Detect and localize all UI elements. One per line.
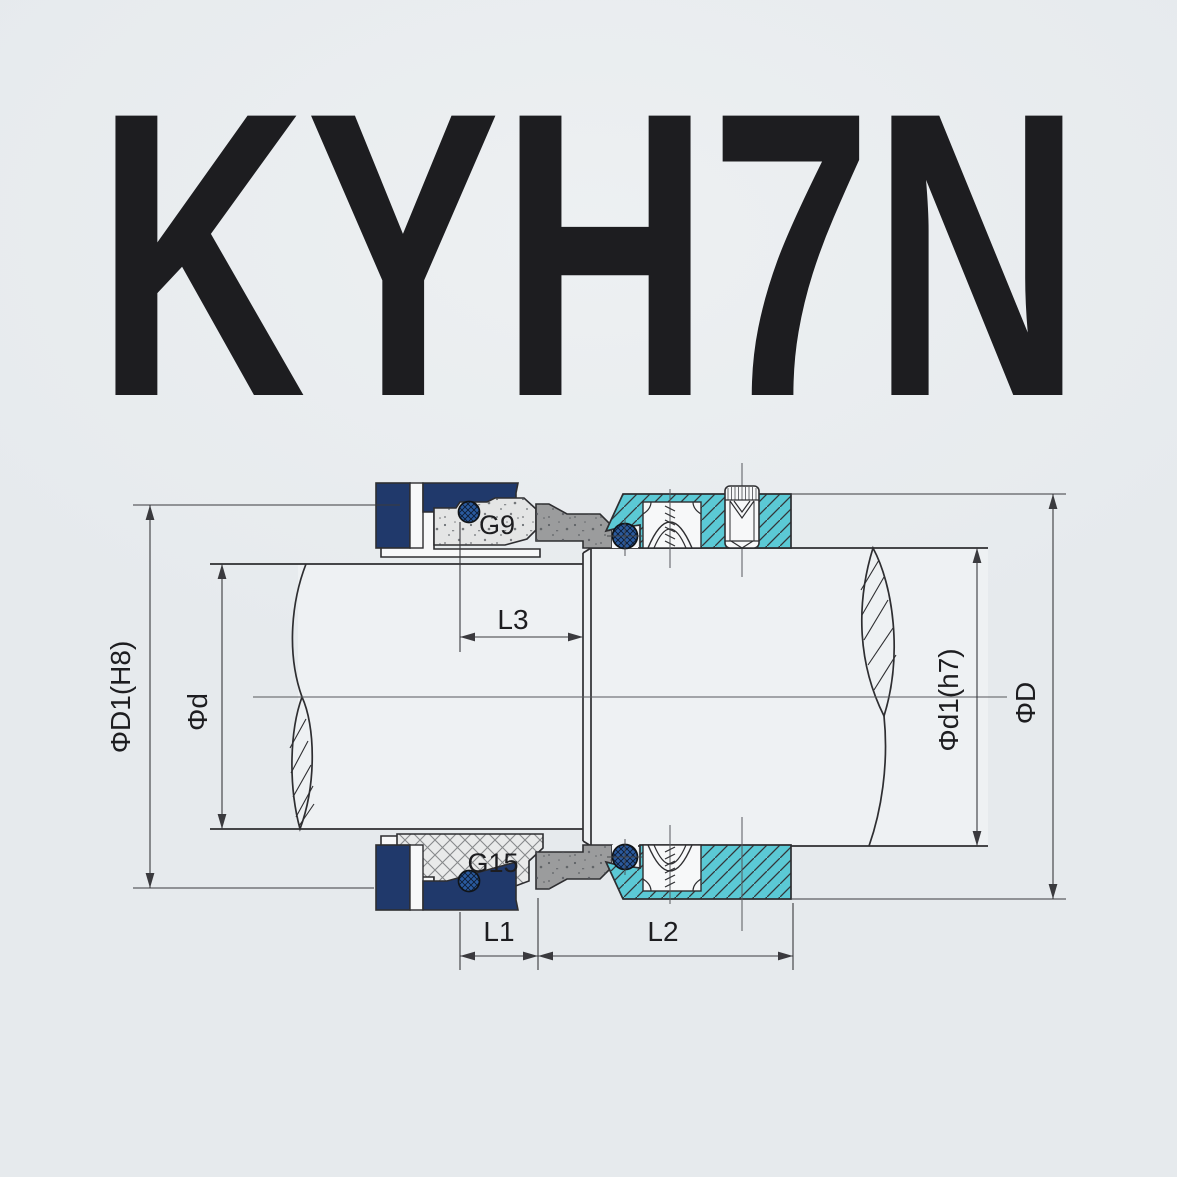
- part-label-g9: G9: [479, 510, 515, 540]
- dim-label-l2: L2: [647, 916, 678, 947]
- watermark-text: KYH7N: [96, 28, 1082, 482]
- dim-label-d1h8: ΦD1(H8): [105, 641, 136, 754]
- seal-cross-section-diagram: KYH7N: [0, 0, 1177, 1177]
- dim-label-d1h7: Φd1(h7): [933, 648, 964, 751]
- gland-bolt-slot-bottom: [410, 845, 423, 910]
- gland-ring-bottom-block: [376, 845, 410, 910]
- part-label-g15: G15: [467, 848, 518, 878]
- dim-label-l1: L1: [483, 916, 514, 947]
- gland-ring-top-block: [376, 483, 410, 548]
- gland-bolt-slot-top: [410, 483, 423, 548]
- dim-label-bigd: ΦD: [1010, 682, 1041, 725]
- dim-label-l3: L3: [497, 604, 528, 635]
- page-background: KYH7N: [0, 0, 1177, 1177]
- dim-label-d: Φd: [182, 693, 213, 731]
- o-ring-top-left: [459, 502, 480, 523]
